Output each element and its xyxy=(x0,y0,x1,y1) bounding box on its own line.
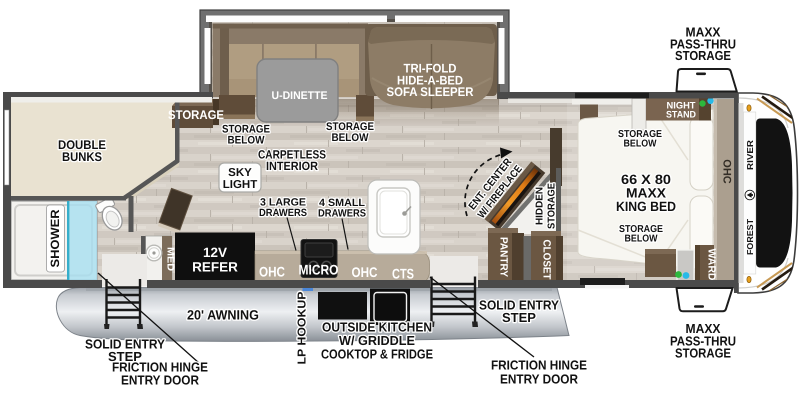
svg-text:DRAWERS: DRAWERS xyxy=(318,208,366,220)
svg-text:KING BED: KING BED xyxy=(616,199,676,214)
svg-text:STORAGE: STORAGE xyxy=(168,108,224,122)
svg-text:20' AWNING: 20' AWNING xyxy=(187,308,259,323)
svg-text:HIDDEN: HIDDEN xyxy=(535,187,546,225)
svg-text:BUNKS: BUNKS xyxy=(62,150,102,164)
svg-text:OHC: OHC xyxy=(721,159,733,184)
svg-text:CTS: CTS xyxy=(392,266,414,282)
svg-text:DRAWERS: DRAWERS xyxy=(259,207,307,219)
svg-text:COOKTOP & FRIDGE: COOKTOP & FRIDGE xyxy=(321,347,433,362)
svg-text:OHC: OHC xyxy=(352,264,378,280)
svg-text:STORAGE: STORAGE xyxy=(547,183,558,229)
svg-text:SOFA SLEEPER: SOFA SLEEPER xyxy=(387,85,474,99)
svg-text:BELOW: BELOW xyxy=(624,139,657,150)
svg-text:INTERIOR: INTERIOR xyxy=(266,159,318,173)
svg-text:STAND: STAND xyxy=(666,110,696,121)
svg-text:MED: MED xyxy=(164,247,175,271)
svg-text:BELOW: BELOW xyxy=(625,234,658,245)
svg-text:WARD: WARD xyxy=(706,249,718,281)
svg-text:FOREST: FOREST xyxy=(745,218,755,255)
svg-text:STORAGE: STORAGE xyxy=(675,48,731,63)
svg-text:U-DINETTE: U-DINETTE xyxy=(272,90,328,102)
svg-text:SHOWER: SHOWER xyxy=(48,209,62,267)
svg-text:RIVER: RIVER xyxy=(745,139,755,170)
svg-text:OHC: OHC xyxy=(259,264,285,280)
svg-text:BELOW: BELOW xyxy=(332,132,370,144)
svg-text:CLOSET: CLOSET xyxy=(541,240,553,281)
svg-text:BELOW: BELOW xyxy=(228,135,266,147)
svg-text:MICRO: MICRO xyxy=(299,262,339,278)
svg-text:ENTRY DOOR: ENTRY DOOR xyxy=(121,373,200,388)
svg-text:LIGHT: LIGHT xyxy=(223,179,258,191)
svg-text:PANTRY: PANTRY xyxy=(498,237,510,277)
svg-text:SKY: SKY xyxy=(228,167,252,179)
svg-text:LP HOOKUP: LP HOOKUP xyxy=(297,291,309,364)
svg-text:FRICTION HINGE: FRICTION HINGE xyxy=(491,358,587,373)
svg-text:12V: 12V xyxy=(203,245,227,260)
svg-text:STORAGE: STORAGE xyxy=(675,346,731,361)
svg-text:REFER: REFER xyxy=(192,260,238,275)
svg-text:ENTRY DOOR: ENTRY DOOR xyxy=(500,372,579,387)
svg-text:STEP: STEP xyxy=(502,310,536,325)
